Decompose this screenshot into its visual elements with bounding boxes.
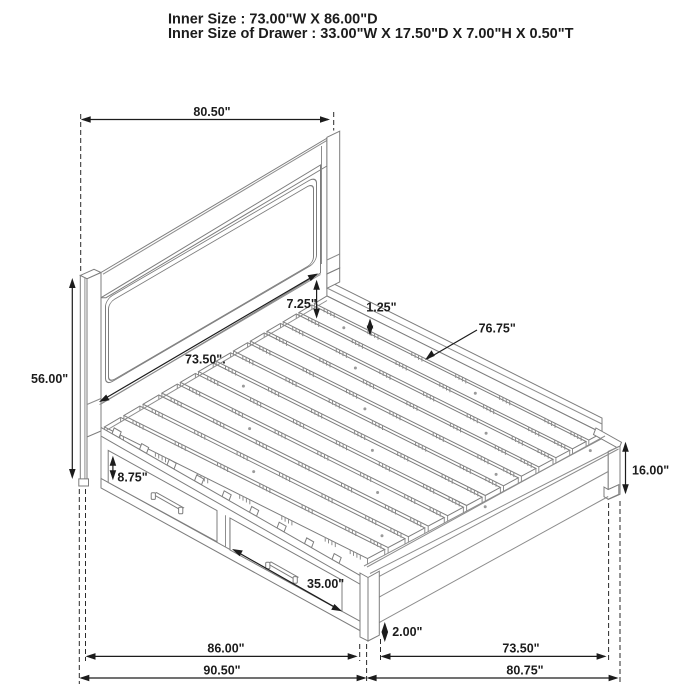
svg-text:Inner Size of Drawer : 33.00"W: Inner Size of Drawer : 33.00"W X 17.50"D… xyxy=(168,26,574,42)
svg-text:73.50".: 73.50". xyxy=(185,353,226,367)
svg-text:80.75": 80.75" xyxy=(506,664,543,678)
svg-text:16.00": 16.00" xyxy=(632,464,669,478)
svg-text:1.25": 1.25" xyxy=(366,301,396,315)
svg-text:86.00": 86.00" xyxy=(207,642,244,656)
svg-text:56.00": 56.00" xyxy=(31,372,68,386)
svg-text:76.75": 76.75" xyxy=(479,322,516,336)
svg-text:80.50": 80.50" xyxy=(193,105,230,119)
svg-text:8.75": 8.75" xyxy=(117,471,147,485)
svg-text:73.50": 73.50" xyxy=(502,642,539,656)
svg-text:90.50": 90.50" xyxy=(203,664,240,678)
svg-text:2.00": 2.00" xyxy=(392,625,422,639)
svg-text:7.25": 7.25" xyxy=(287,297,317,311)
svg-text:35.00": 35.00" xyxy=(307,577,344,591)
